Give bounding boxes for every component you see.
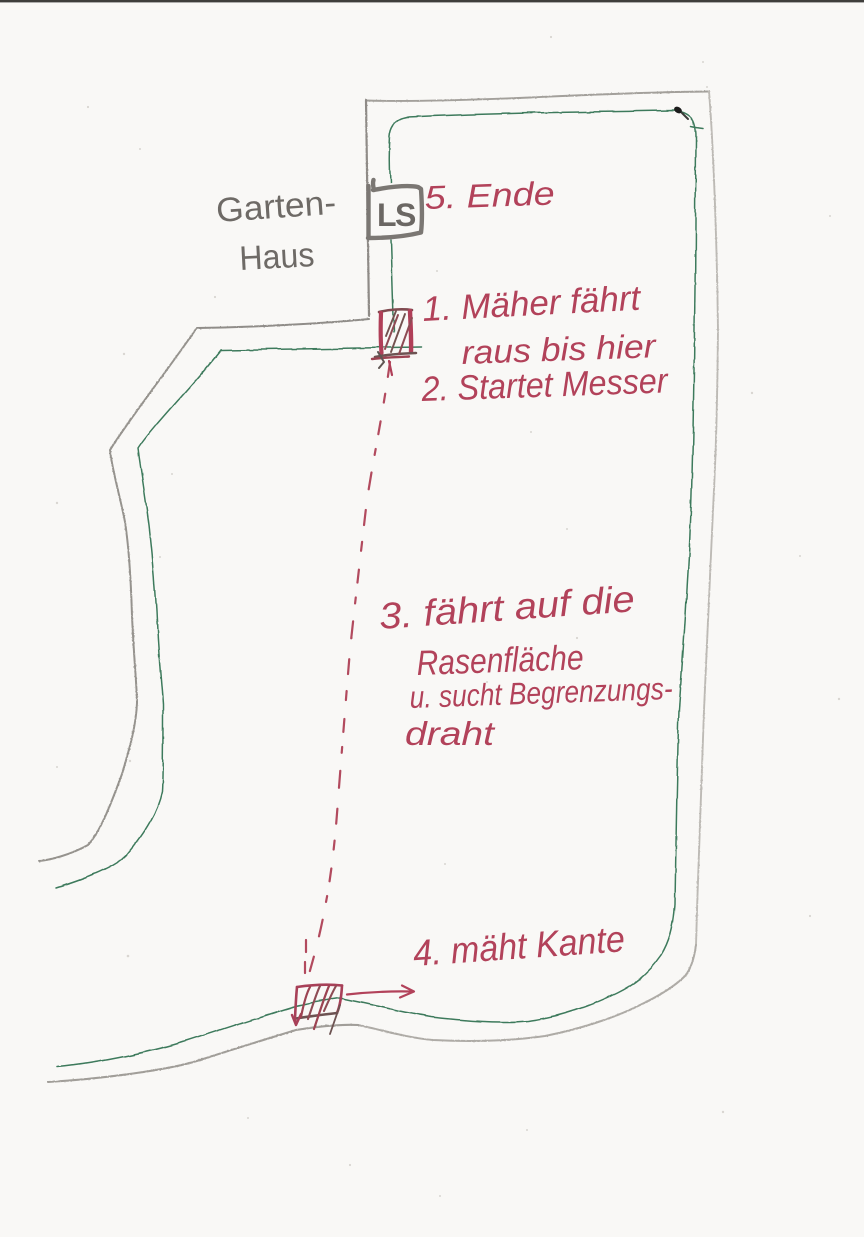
- svg-text:draht: draht: [405, 715, 496, 752]
- svg-text:LS: LS: [377, 197, 416, 233]
- svg-text:Haus: Haus: [238, 236, 315, 278]
- svg-text:5. Ende: 5. Ende: [424, 174, 555, 216]
